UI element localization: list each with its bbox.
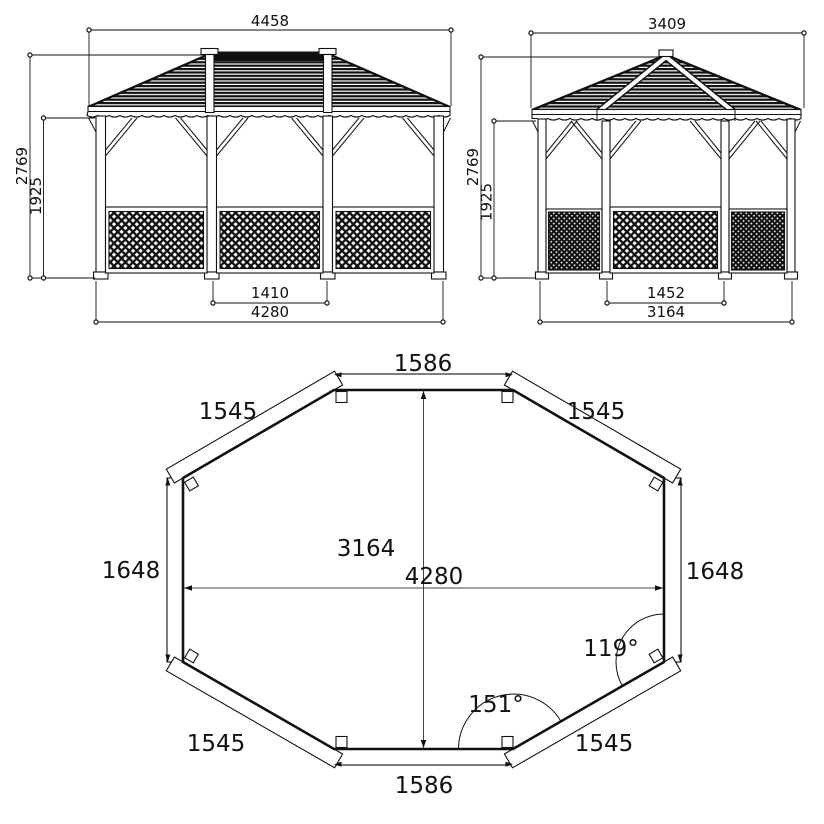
front-elevation: 4458 2769 1925 1410 4280 [13,12,453,324]
dim-plan-top-side: 1586 [394,351,453,377]
front-finial-post-left [206,55,215,113]
side-dimensions: 3409 2769 1925 1452 3164 [464,15,806,324]
drawing-canvas: 4458 2769 1925 1410 4280 [0,0,824,824]
dim-side-eave-height: 1925 [478,183,496,221]
front-finial-cap-right [319,49,336,55]
dim-plan-angle-side: 119° [583,636,638,662]
dim-plan-diag-bottom-right: 1545 [575,731,634,757]
dim-plan-diag-top-right: 1545 [567,399,626,425]
dim-plan-diag-bottom-left: 1545 [187,731,246,757]
gazebo-technical-drawing: 4458 2769 1925 1410 4280 [0,0,824,824]
plan-view: 1586 1586 1545 1545 1545 1545 1648 1648 … [102,351,745,799]
dim-plan-left-side: 1648 [102,558,161,584]
front-finial-cap-left [201,49,218,55]
dim-plan-diag-top-left: 1545 [199,399,258,425]
dim-side-total-height: 2769 [464,148,482,186]
front-lattice-panels [106,207,435,273]
dim-front-eave-height: 1925 [27,177,45,215]
side-fascia-scalloped [532,115,801,121]
side-lattice-panels [546,207,787,273]
dim-side-base-width: 3164 [647,303,685,321]
dim-side-roof-width: 3409 [648,15,686,33]
dim-side-bay-width: 1452 [647,284,685,302]
dim-plan-overall-width: 4280 [405,564,464,590]
dim-plan-bottom-side: 1586 [395,773,454,799]
front-roof [87,49,450,118]
side-roof [532,50,801,121]
dim-plan-overall-depth: 3164 [337,536,396,562]
side-braces [533,121,801,159]
side-elevation: 3409 2769 1925 1452 3164 [464,15,806,324]
dim-front-roof-width: 4458 [251,12,289,30]
front-fascia-scalloped [87,112,450,118]
dim-front-base-width: 4280 [251,303,289,321]
front-braces [89,118,451,156]
side-apex-cap [659,50,673,57]
front-finial-post-right [324,55,333,113]
dim-plan-right-side: 1648 [686,559,745,585]
dim-front-bay-width: 1410 [251,284,289,302]
dim-plan-angle-bottom: 151° [468,692,523,718]
